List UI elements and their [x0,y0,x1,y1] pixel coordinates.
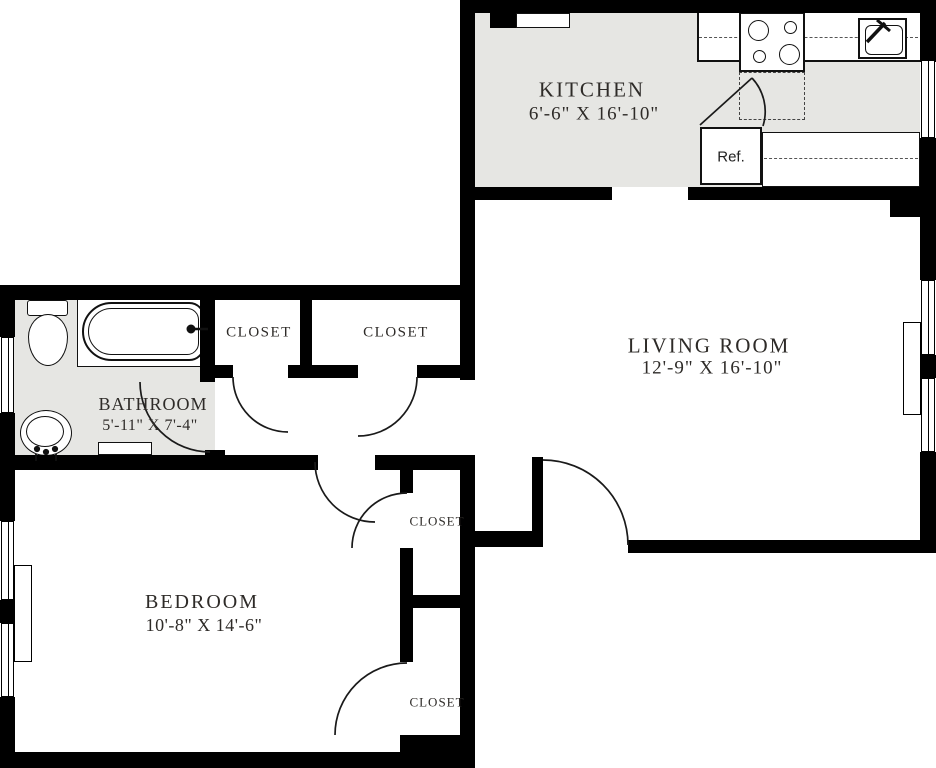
bathroom-label: BATHROOM [98,395,207,413]
bedroom-door-arc [315,462,375,522]
bedroom-window-2 [1,623,14,697]
bathroom-window [1,337,14,413]
kitchen-dims: 6'-6" X 16'-10" [529,105,659,124]
hall-closet-right-door-arc [358,377,417,436]
basin-faucet-icon [34,446,57,461]
bedroom-closet-bottom-label: CLOSET [409,696,464,709]
entry-door-arc [543,460,628,545]
bedroom-radiator [14,565,32,662]
kitchen-faucet-icon [867,20,890,42]
kitchen-corner-cabinet-door [700,78,752,125]
bedroom-dims: 10'-8" X 14'-6" [146,616,263,634]
bedroom-label: BEDROOM [145,592,259,612]
kitchen-corner-cabinet-arc [752,78,765,126]
kitchen-window [921,60,935,138]
bedroom-closet-top-label: CLOSET [409,515,464,528]
door-arcs-layer [0,0,936,768]
living-room-window-1 [921,280,935,355]
hall-closet-left-label: CLOSET [226,326,292,341]
hall-closet-left-door-arc [233,377,288,432]
floor-plan: Ref. [0,0,936,768]
bedroom-closet-bottom-door-arc [335,663,407,735]
refrigerator-label: Ref. [717,150,745,165]
kitchen-label: KITCHEN [539,80,645,101]
tub-faucet-icon [187,325,208,333]
living-room-radiator [903,322,921,415]
living-room-window-2 [921,378,935,452]
living-room-dims: 12'-9" X 16'-10" [642,359,783,378]
hall-closet-right-label: CLOSET [363,326,429,341]
bedroom-window-1 [1,521,14,600]
living-room-label: LIVING ROOM [628,336,791,357]
bathroom-dims: 5'-11" X 7'-4" [102,418,197,434]
